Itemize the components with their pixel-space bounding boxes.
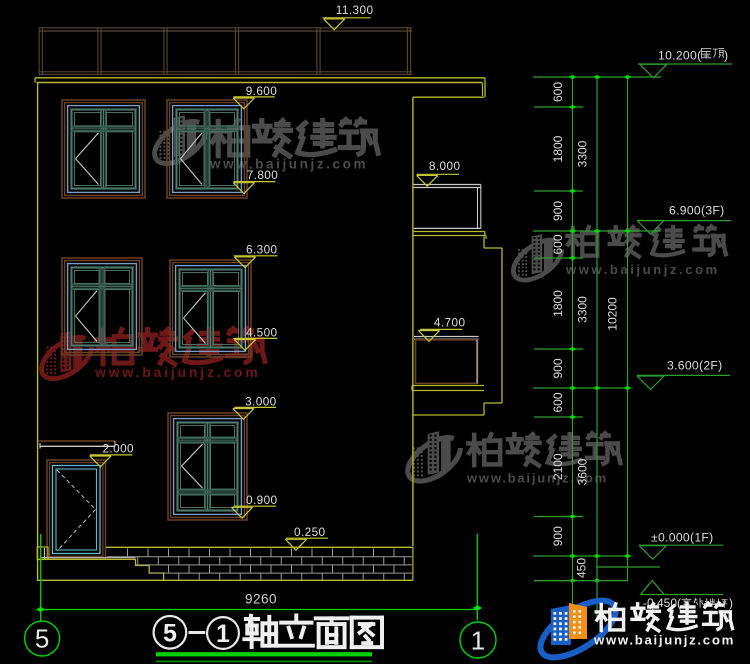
- svg-text:www.baijunjz.com: www.baijunjz.com: [94, 364, 261, 380]
- svg-text:11.300: 11.300: [336, 3, 374, 17]
- svg-text:600: 600: [551, 392, 565, 412]
- svg-text:5: 5: [35, 624, 49, 654]
- svg-text:1800: 1800: [551, 135, 565, 162]
- svg-text:1: 1: [216, 620, 230, 648]
- svg-text:10.200(: 10.200(: [658, 49, 701, 63]
- svg-text:7.800: 7.800: [247, 168, 279, 182]
- svg-text:900: 900: [551, 201, 565, 221]
- svg-text:3300: 3300: [576, 296, 590, 323]
- svg-text:4.700: 4.700: [434, 316, 466, 330]
- svg-text:900: 900: [551, 358, 565, 378]
- svg-text:9260: 9260: [245, 592, 277, 607]
- svg-text:1: 1: [471, 626, 485, 656]
- svg-text:8.000: 8.000: [429, 159, 461, 173]
- svg-text:5: 5: [163, 620, 177, 648]
- svg-text:): ): [724, 49, 728, 63]
- svg-text:3300: 3300: [576, 140, 590, 167]
- svg-text:2.000: 2.000: [103, 442, 135, 456]
- svg-text:6.900(3F): 6.900(3F): [669, 204, 725, 218]
- svg-text:0.250: 0.250: [294, 525, 326, 539]
- svg-text:600: 600: [551, 82, 565, 102]
- svg-text:600: 600: [551, 234, 565, 254]
- svg-text:450: 450: [575, 558, 589, 578]
- svg-text:4.500: 4.500: [246, 326, 278, 340]
- svg-text:±0.000(1F): ±0.000(1F): [651, 531, 714, 545]
- svg-text:2100: 2100: [551, 453, 565, 480]
- svg-text:3.600(2F): 3.600(2F): [667, 359, 723, 373]
- svg-text:0.900: 0.900: [246, 493, 278, 507]
- svg-text:3600: 3600: [576, 458, 590, 485]
- svg-text:1800: 1800: [551, 290, 565, 317]
- svg-text:www.baijunjz.com: www.baijunjz.com: [209, 157, 368, 172]
- svg-text:10200: 10200: [606, 297, 620, 331]
- svg-text:www.baijunjz.com: www.baijunjz.com: [565, 262, 720, 277]
- svg-text:9.600: 9.600: [246, 84, 278, 98]
- svg-text:6.300: 6.300: [246, 243, 278, 257]
- svg-text:3.000: 3.000: [245, 394, 277, 408]
- svg-text:): ): [729, 596, 733, 610]
- svg-text:900: 900: [551, 526, 565, 546]
- svg-text:www.baijunjz.com: www.baijunjz.com: [593, 633, 735, 648]
